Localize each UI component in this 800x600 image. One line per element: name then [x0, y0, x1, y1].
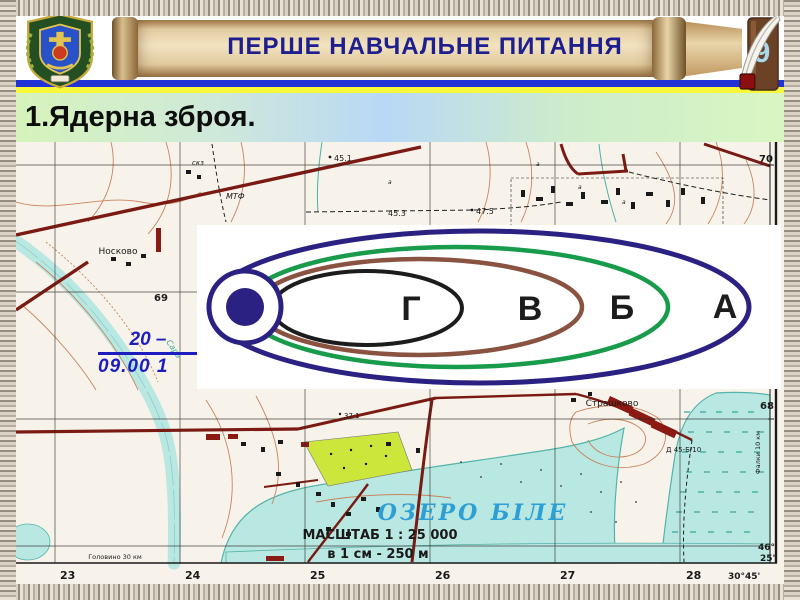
zone-ellipse-g — [272, 271, 462, 345]
map-roadsign-golovino: Головино 30 км — [88, 553, 142, 561]
veg-mark: а — [536, 161, 540, 168]
map-elevation-3: 47.5 — [476, 207, 494, 216]
veg-mark: а — [388, 179, 392, 186]
veg-mark: а — [578, 184, 582, 191]
map-elevation-4: 37.1 — [344, 412, 360, 420]
zone-label-b: Б — [610, 289, 634, 327]
map-label-mtf: МТФ — [226, 192, 245, 201]
inkwell-icon — [740, 74, 755, 89]
svg-text:70: 70 — [759, 154, 773, 165]
frame-top — [0, 0, 800, 16]
map-scale-line1: МАСШТАБ 1 : 25 000 — [302, 528, 457, 543]
flag-stripe-blue — [16, 80, 784, 87]
zone-label-v: В — [518, 290, 543, 328]
svg-text:46°: 46° — [758, 543, 775, 553]
map-label-skz: скз — [192, 159, 204, 167]
lesson-title: 1.Ядерна зброя. — [16, 93, 784, 142]
frame-left — [0, 0, 16, 600]
frame-right — [784, 0, 800, 600]
zone-label-a: А — [713, 288, 738, 326]
damage-zones-diagram: Г В Б А — [197, 225, 781, 389]
svg-text:25': 25' — [760, 554, 775, 564]
presentation-slide: Носково Страшково МТФ скз Д 45-Б/10 45.1… — [0, 0, 800, 600]
strike-annotation: 20 – 09.00 1 — [98, 329, 198, 378]
map-label-unit: Д 45-Б/10 — [666, 446, 701, 454]
slide-number-book: 9 — [698, 10, 782, 94]
svg-text:28: 28 — [686, 569, 701, 582]
flag-stripe-yellow — [16, 87, 784, 93]
zone-label-g: Г — [401, 290, 420, 328]
map-label-strashkovo: Страшково — [586, 399, 639, 409]
map-label-noskovo: Носково — [99, 247, 138, 257]
map-elevation-1: 45.1 — [334, 154, 352, 163]
banner-title: ПЕРШЕ НАВЧАЛЬНЕ ПИТАННЯ — [100, 17, 750, 80]
svg-text:24: 24 — [185, 569, 201, 582]
lake-name: ОЗЕРО БІЛЕ — [378, 500, 568, 526]
svg-text:25: 25 — [310, 569, 325, 582]
slide-header: ПЕРШЕ НАВЧАЛЬНЕ ПИТАННЯ 9 — [16, 16, 784, 80]
frame-bottom — [0, 584, 800, 600]
svg-text:26: 26 — [435, 569, 451, 582]
zones-canvas: Г В Б А — [197, 225, 781, 389]
strike-annotation-line2: 09.00 1 — [98, 355, 198, 378]
unit-emblem — [20, 10, 100, 90]
svg-text:23: 23 — [60, 569, 75, 582]
map-elevation-2: 45.3 — [388, 209, 406, 218]
svg-text:68: 68 — [760, 401, 774, 412]
epicenter-marker — [226, 288, 264, 326]
banner-scroll: ПЕРШЕ НАВЧАЛЬНЕ ПИТАННЯ — [100, 17, 750, 80]
lesson-title-bar: 1.Ядерна зброя. — [16, 93, 784, 142]
svg-text:30°45': 30°45' — [728, 572, 760, 582]
strike-annotation-line1: 20 – — [98, 329, 198, 355]
veg-mark: а — [622, 199, 626, 206]
svg-text:27: 27 — [560, 569, 575, 582]
svg-text:69: 69 — [154, 293, 168, 304]
map-roadsign-falki: Фалки 10 км — [754, 431, 762, 474]
map-scale-line2: в 1 см - 250 м — [327, 547, 428, 562]
